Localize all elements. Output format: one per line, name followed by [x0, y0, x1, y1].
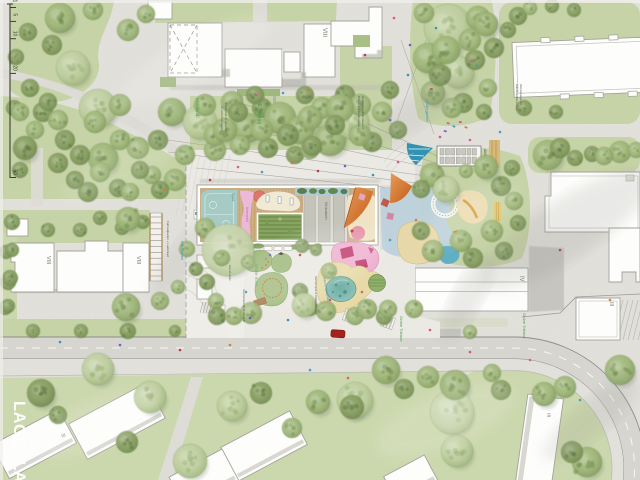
svg-text:LAGEPLAN: LAGEPLAN [10, 401, 28, 480]
svg-text:Treffpunkt im Quartier: Treffpunkt im Quartier [224, 103, 228, 132]
svg-text:Blick in den Kindergarten: Blick in den Kindergarten [357, 96, 361, 128]
svg-text:III: III [608, 302, 614, 306]
svg-text:Kita-Vorplatz: Kita-Vorplatz [180, 241, 184, 261]
svg-text:5: 5 [12, 13, 18, 16]
svg-text:1: 1 [12, 0, 18, 3]
svg-text:10: 10 [12, 31, 18, 37]
svg-text:20: 20 [12, 65, 18, 71]
svg-text:VIII: VIII [135, 256, 141, 265]
svg-text:VIII: VIII [45, 256, 51, 265]
svg-text:Fahrradparker + Lastenrad: Fahrradparker + Lastenrad [166, 221, 170, 257]
svg-text:III: III [545, 413, 552, 418]
svg-text:mit Aufenthaltsqualität: mit Aufenthaltsqualität [220, 106, 224, 132]
svg-text:Bewegung: Bewegung [245, 207, 250, 222]
svg-text:Aufenthaltsbereichen: Aufenthaltsbereichen [515, 84, 519, 111]
svg-text:Kleinkind: Kleinkind [195, 98, 200, 117]
svg-text:Sport: Sport [231, 193, 235, 201]
svg-text:VIII: VIII [321, 28, 327, 37]
svg-text:Grüne Tribüne: Grüne Tribüne [522, 313, 527, 339]
svg-text:Gründach: Gründach [324, 202, 329, 220]
svg-text:Grüne Tribüne: Grüne Tribüne [399, 316, 404, 342]
svg-text:50: 50 [12, 170, 18, 176]
svg-text:Erholung: Erholung [256, 104, 262, 124]
